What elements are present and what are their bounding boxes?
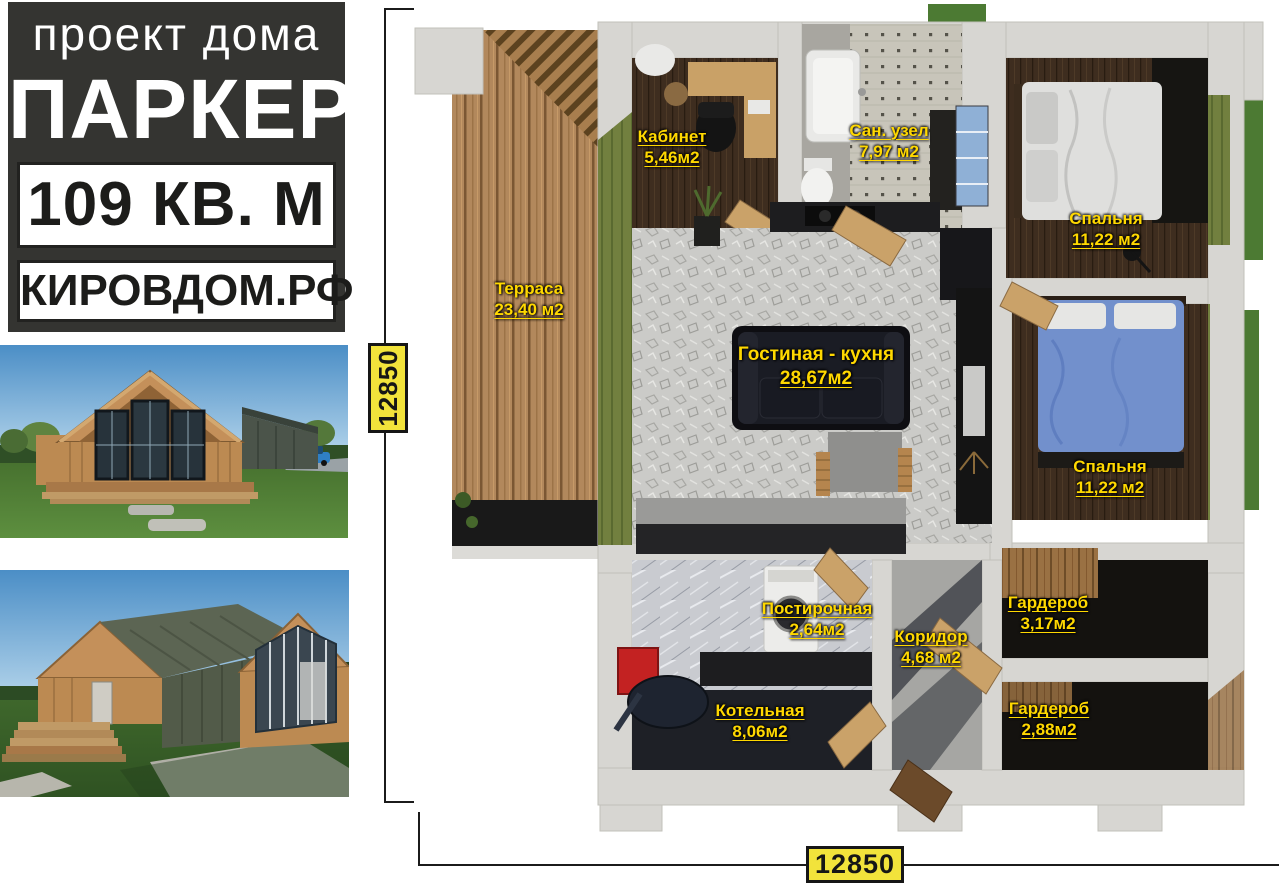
dimension-label-height: 12850 xyxy=(368,343,408,433)
room-label-living: Гостиная - кухня28,67м2 xyxy=(738,343,894,391)
room-label-bedroom1: Спальня11,22 м2 xyxy=(1069,208,1142,250)
room-label-office: Кабинет5,46м2 xyxy=(638,126,707,168)
room-label-bathroom: Сан. узел7,97 м2 xyxy=(849,120,928,162)
room-label-wardrobe1: Гардероб3,17м2 xyxy=(1008,592,1088,634)
dimension-label-width: 12850 xyxy=(806,846,904,883)
room-label-bedroom2: Спальня11,22 м2 xyxy=(1073,456,1146,498)
room-label-terrace: Терраса23,40 м2 xyxy=(494,278,563,320)
poster-page: проект дома ПАРКЕР 109 КВ. М КИРОВДОМ.РФ xyxy=(0,0,1280,886)
room-label-boiler: Котельная8,06м2 xyxy=(715,700,804,742)
room-label-laundry: Постирочная2,64м2 xyxy=(762,598,872,640)
room-label-wardrobe2: Гардероб2,88м2 xyxy=(1009,698,1089,740)
room-label-corridor: Коридор4,68 м2 xyxy=(894,626,967,668)
